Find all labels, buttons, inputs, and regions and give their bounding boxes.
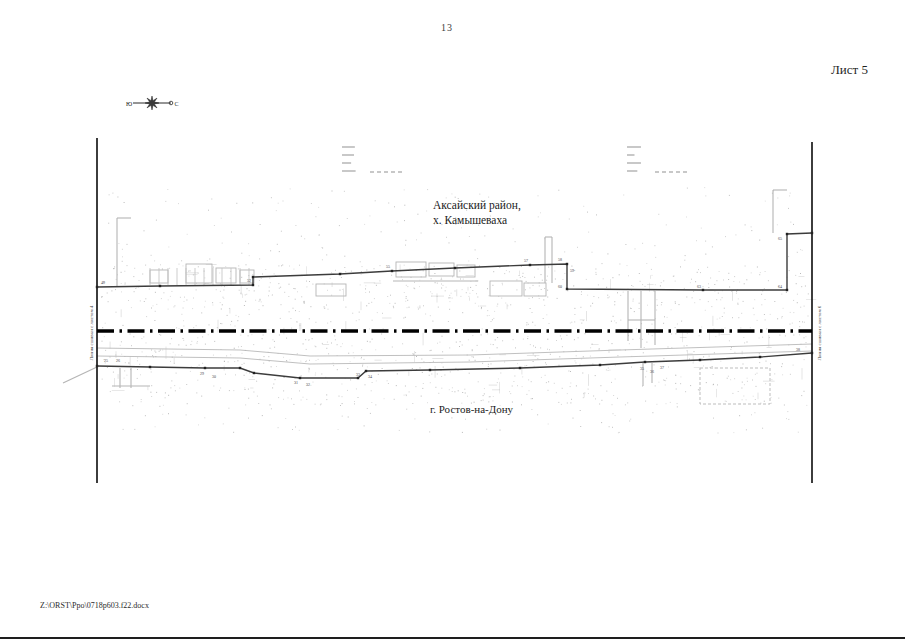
speckle — [726, 401, 727, 402]
speckle — [514, 376, 515, 377]
speckle — [687, 333, 688, 334]
speckle — [377, 312, 378, 313]
speckle — [241, 277, 242, 278]
speckle — [219, 390, 220, 391]
speckle — [381, 334, 382, 335]
speckle — [804, 322, 805, 323]
speckle — [435, 282, 436, 283]
speckle — [554, 383, 555, 384]
speckle — [473, 357, 474, 358]
speckle — [547, 290, 548, 291]
speckle — [732, 317, 733, 318]
speckle — [699, 335, 700, 336]
speckle — [506, 270, 507, 271]
speckle — [151, 350, 152, 351]
speckle — [560, 335, 561, 336]
speckle — [801, 395, 802, 396]
match-line-label-left: Линия сшивки с листом 4 — [89, 306, 94, 361]
speckle — [733, 432, 734, 433]
speckle — [680, 266, 681, 267]
speckle — [703, 356, 704, 357]
speckle — [262, 415, 263, 416]
speckle — [269, 287, 270, 288]
speckle — [372, 339, 373, 340]
speckle — [382, 368, 383, 369]
speckle — [137, 360, 138, 361]
speckle — [193, 327, 194, 328]
speckle — [585, 333, 586, 334]
speckle — [174, 385, 175, 386]
point-number-label: 36 — [650, 369, 654, 374]
speckle — [630, 419, 631, 420]
speckle — [595, 398, 596, 399]
speckle — [694, 351, 695, 352]
speckle — [487, 288, 488, 289]
speckle — [197, 337, 198, 338]
speckle — [242, 353, 243, 354]
speckle — [458, 390, 459, 391]
speckle — [262, 274, 263, 275]
speckle — [150, 392, 151, 393]
speckle — [261, 301, 262, 302]
speckle — [444, 375, 445, 376]
speckle — [331, 272, 332, 273]
speckle — [369, 292, 370, 293]
speckle — [155, 426, 156, 427]
speckle — [423, 270, 424, 271]
speckle — [538, 269, 539, 270]
speckle — [387, 296, 388, 297]
speckle — [264, 356, 265, 357]
speckle — [540, 347, 541, 348]
speckle — [388, 203, 389, 204]
tiny-annotation — [669, 171, 673, 173]
speckle — [204, 307, 205, 308]
speckle — [146, 316, 147, 317]
boundary-vertex-marker — [252, 284, 254, 286]
speckle — [628, 275, 629, 276]
speckle — [107, 293, 108, 294]
speckle — [184, 297, 185, 298]
speckle — [153, 305, 154, 306]
speckle — [213, 355, 214, 356]
speckle — [410, 268, 411, 269]
speckle — [286, 338, 287, 339]
boundary-vertex-marker — [786, 233, 788, 235]
speckle — [184, 301, 185, 302]
speckle — [255, 300, 256, 301]
speckle — [580, 307, 581, 308]
speckle — [559, 365, 560, 366]
speckle — [226, 355, 227, 356]
speckle — [708, 301, 709, 302]
speckle — [681, 321, 682, 322]
speckle — [404, 205, 405, 206]
speckle — [532, 297, 533, 298]
speckle — [671, 309, 672, 310]
speckle — [141, 401, 142, 402]
speckle — [730, 349, 731, 350]
speckle — [202, 363, 203, 364]
speckle — [570, 386, 571, 387]
speckle — [304, 301, 305, 302]
speckle — [478, 306, 479, 307]
speckle — [337, 344, 338, 345]
speckle — [564, 273, 565, 274]
speckle — [328, 353, 329, 354]
speckle — [523, 273, 524, 274]
speckle — [497, 347, 498, 348]
speckle — [747, 378, 748, 379]
speckle — [729, 340, 730, 341]
building-outline — [316, 284, 346, 296]
speckle — [760, 403, 761, 404]
speckle — [151, 308, 152, 309]
speckle — [483, 395, 484, 396]
speckle — [754, 299, 755, 300]
speckle — [168, 309, 169, 310]
speckle — [490, 396, 491, 397]
speckle — [127, 244, 128, 245]
speckle — [115, 289, 116, 290]
speckle — [370, 413, 371, 414]
speckle — [505, 303, 506, 304]
speckle — [449, 295, 450, 296]
speckle — [299, 390, 300, 391]
speckle — [736, 291, 737, 292]
speckle — [743, 364, 744, 365]
speckle — [521, 404, 522, 405]
speckle — [481, 334, 482, 335]
speckle — [111, 290, 112, 291]
speckle — [500, 373, 501, 374]
speckle — [743, 337, 744, 338]
speckle — [278, 265, 279, 266]
speckle — [574, 270, 575, 271]
speckle — [716, 299, 717, 300]
speckle — [342, 416, 343, 417]
speckle — [686, 217, 687, 218]
speckle — [751, 272, 752, 273]
speckle — [354, 403, 355, 404]
speckle — [269, 291, 270, 292]
speckle — [667, 317, 668, 318]
speckle — [224, 361, 225, 362]
speckle — [301, 400, 302, 401]
speckle — [549, 349, 550, 350]
speckle — [384, 338, 385, 339]
point-number-label: 65 — [778, 236, 782, 241]
speckle — [176, 373, 177, 374]
speckle — [205, 301, 206, 302]
speckle — [616, 322, 617, 323]
speckle — [371, 302, 372, 303]
speckle — [150, 369, 151, 370]
speckle — [360, 261, 361, 262]
speckle — [722, 297, 723, 298]
speckle — [273, 384, 274, 385]
speckle — [675, 301, 676, 302]
boundary-vertex-marker — [699, 359, 701, 361]
speckle — [301, 375, 302, 376]
speckle — [462, 312, 463, 313]
speckle — [606, 391, 607, 392]
speckle — [516, 289, 517, 290]
speckle — [361, 274, 362, 275]
speckle — [419, 306, 420, 307]
speckle — [333, 365, 334, 366]
speckle — [125, 283, 126, 284]
district-label: Аксайский район, х. Камышеваха — [433, 198, 521, 228]
speckle — [405, 240, 406, 241]
speckle — [394, 206, 395, 207]
speckle — [747, 342, 748, 343]
speckle — [257, 396, 258, 397]
speckle — [608, 368, 609, 369]
speckle — [402, 279, 403, 280]
speckle — [134, 291, 135, 292]
speckle — [427, 189, 428, 190]
speckle — [617, 398, 618, 399]
speckle — [397, 373, 398, 374]
speckle — [738, 317, 739, 318]
speckle — [352, 345, 353, 346]
tiny-annotation — [370, 171, 374, 173]
speckle — [685, 391, 686, 392]
speckle — [124, 370, 125, 371]
speckle — [632, 339, 633, 340]
speckle — [443, 367, 444, 368]
city-label: г. Ростов-на-Дону — [430, 403, 513, 415]
speckle — [608, 370, 609, 371]
speckle — [324, 306, 325, 307]
speckle — [545, 375, 546, 376]
speckle — [181, 260, 182, 261]
speckle — [478, 381, 479, 382]
speckle — [708, 287, 709, 288]
lower-boundary-line — [97, 353, 812, 378]
speckle — [713, 384, 714, 385]
speckle — [676, 389, 677, 390]
speckle — [562, 279, 563, 280]
speckle — [124, 202, 125, 203]
speckle — [292, 429, 293, 430]
tiny-annotation — [342, 162, 351, 164]
speckle — [497, 382, 498, 383]
speckle — [283, 201, 284, 202]
speckle — [719, 318, 720, 319]
speckle — [315, 375, 316, 376]
speckle — [186, 414, 187, 415]
road-edge-line — [97, 351, 812, 364]
speckle — [395, 303, 396, 304]
speckle — [684, 288, 685, 289]
speckle — [562, 388, 563, 389]
speckle — [595, 272, 596, 273]
speckle — [245, 389, 246, 390]
speckle — [442, 336, 443, 337]
speckle — [663, 280, 664, 281]
speckle — [366, 270, 367, 271]
speckle — [487, 315, 488, 316]
speckle — [347, 368, 348, 369]
speckle — [526, 365, 527, 366]
speckle — [562, 346, 563, 347]
speckle — [171, 291, 172, 292]
speckle — [404, 220, 405, 221]
speckle — [675, 383, 676, 384]
speckle — [633, 299, 634, 300]
speckle — [724, 308, 725, 309]
speckle — [119, 401, 120, 402]
boundary-vertex-marker — [204, 367, 206, 369]
speckle — [299, 311, 300, 312]
speckle — [509, 391, 510, 392]
speckle — [375, 349, 376, 350]
speckle — [209, 324, 210, 325]
boundary-vertex-marker — [599, 364, 601, 366]
speckle — [183, 338, 184, 339]
speckle — [468, 261, 469, 262]
speckle — [220, 302, 221, 303]
speckle — [793, 312, 794, 313]
speckle — [452, 391, 453, 392]
speckle — [534, 366, 535, 367]
speckle — [717, 384, 718, 385]
speckle — [310, 306, 311, 307]
speckle — [126, 375, 127, 376]
speckle — [670, 402, 671, 403]
speckle — [603, 278, 604, 279]
speckle — [202, 336, 203, 337]
speckle — [312, 338, 313, 339]
speckle — [332, 191, 333, 192]
speckle — [268, 295, 269, 296]
speckle — [190, 344, 191, 345]
speckle — [245, 301, 246, 302]
speckle — [362, 364, 363, 365]
boundary-vertex-marker — [529, 264, 531, 266]
speckle — [777, 318, 778, 319]
speckle — [233, 390, 234, 391]
speckle — [107, 367, 108, 368]
speckle — [725, 401, 726, 402]
speckle — [306, 281, 307, 282]
speckle — [808, 316, 809, 317]
speckle — [746, 399, 747, 400]
speckle — [326, 348, 327, 349]
speckle — [415, 352, 416, 353]
speckle — [789, 195, 790, 196]
speckle — [673, 276, 674, 277]
speckle — [170, 343, 171, 344]
speckle — [732, 393, 733, 394]
speckle — [272, 387, 273, 388]
speckle — [362, 366, 363, 367]
speckle — [406, 285, 407, 286]
speckle — [369, 215, 370, 216]
speckle — [527, 338, 528, 339]
speckle — [538, 216, 539, 217]
speckle — [403, 318, 404, 319]
speckle — [327, 323, 328, 324]
speckle — [664, 380, 665, 381]
speckle — [220, 323, 221, 324]
speckle — [484, 388, 485, 389]
speckle — [753, 308, 754, 309]
speckle — [764, 288, 765, 289]
speckle — [611, 321, 612, 322]
speckle — [283, 357, 284, 358]
speckle — [611, 382, 612, 383]
speckle — [547, 276, 548, 277]
speckle — [165, 392, 166, 393]
speckle — [274, 273, 275, 274]
speckle — [542, 280, 543, 281]
speckle — [228, 361, 229, 362]
speckle — [277, 244, 278, 245]
speckle — [489, 396, 490, 397]
speckle — [785, 335, 786, 336]
speckle — [507, 305, 508, 306]
speckle — [467, 396, 468, 397]
speckle — [278, 283, 279, 284]
speckle — [718, 433, 719, 434]
speckle — [583, 397, 584, 398]
speckle — [714, 284, 715, 285]
boundary-vertex-marker — [644, 361, 646, 363]
speckle — [406, 394, 407, 395]
speckle — [768, 280, 769, 281]
speckle — [173, 306, 174, 307]
speckle — [739, 282, 740, 283]
speckle — [137, 357, 138, 358]
speckle — [570, 383, 571, 384]
speckle — [596, 274, 597, 275]
speckle — [619, 274, 620, 275]
speckle — [757, 320, 758, 321]
speckle — [271, 366, 272, 367]
speckle — [322, 259, 323, 260]
speckle — [770, 363, 771, 364]
speckle — [642, 284, 643, 285]
speckle — [581, 323, 582, 324]
speckle — [348, 417, 349, 418]
speckle — [430, 315, 431, 316]
speckle — [159, 406, 160, 407]
speckle — [223, 297, 224, 298]
speckle — [145, 415, 146, 416]
speckle — [642, 339, 643, 340]
speckle — [762, 337, 763, 338]
speckle — [804, 359, 805, 360]
speckle — [504, 273, 505, 274]
speckle — [556, 340, 557, 341]
speckle — [174, 305, 175, 306]
speckle — [601, 422, 602, 423]
speckle — [656, 404, 657, 405]
speckle — [522, 276, 523, 277]
speckle — [128, 300, 129, 301]
tiny-annotation — [342, 146, 355, 148]
map-sheet: 4952555758596063646525262930313233343536… — [0, 0, 905, 640]
speckle — [477, 297, 478, 298]
speckle — [372, 320, 373, 321]
speckle — [441, 279, 442, 280]
speckle — [179, 388, 180, 389]
speckle — [290, 318, 291, 319]
speckle — [155, 311, 156, 312]
